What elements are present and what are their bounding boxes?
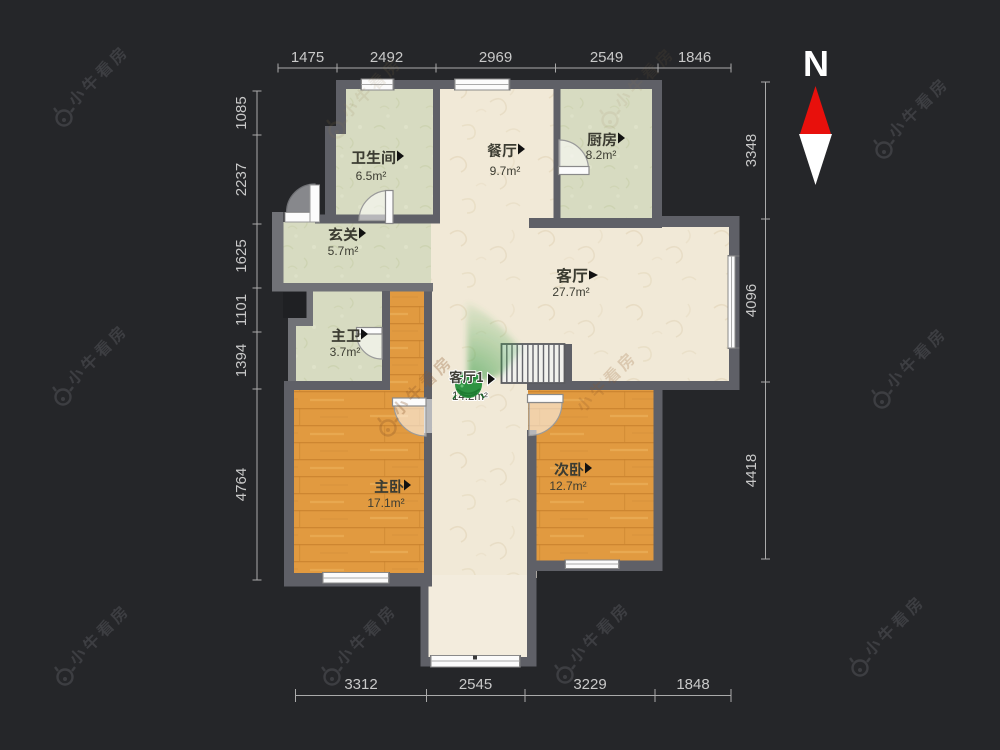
svg-text:8.2m²: 8.2m² (586, 148, 617, 162)
svg-text:4764: 4764 (233, 468, 250, 501)
svg-text:9.7m²: 9.7m² (490, 164, 521, 178)
svg-text:2969: 2969 (479, 49, 512, 66)
svg-text:27.7m²: 27.7m² (552, 285, 589, 299)
svg-text:1101: 1101 (233, 294, 250, 326)
svg-text:1394: 1394 (233, 344, 250, 377)
svg-text:2237: 2237 (233, 163, 250, 196)
svg-text:2549: 2549 (590, 49, 623, 66)
svg-text:N: N (803, 43, 829, 84)
svg-text:2545: 2545 (459, 676, 492, 693)
svg-text:4418: 4418 (743, 454, 760, 487)
svg-text:3348: 3348 (743, 134, 760, 167)
svg-text:1625: 1625 (233, 239, 250, 272)
svg-text:17.1m²: 17.1m² (367, 496, 404, 510)
svg-text:4096: 4096 (743, 284, 760, 317)
svg-text:3229: 3229 (573, 676, 606, 693)
svg-text:1085: 1085 (233, 96, 250, 129)
svg-text:1846: 1846 (678, 49, 711, 66)
svg-text:3312: 3312 (344, 676, 377, 693)
svg-text:12.7m²: 12.7m² (549, 479, 586, 493)
svg-text:1475: 1475 (291, 49, 324, 66)
svg-text:1848: 1848 (676, 676, 709, 693)
svg-text:5.7m²: 5.7m² (328, 244, 359, 258)
svg-text:3.7m²: 3.7m² (330, 345, 361, 359)
svg-text:6.5m²: 6.5m² (356, 169, 387, 183)
